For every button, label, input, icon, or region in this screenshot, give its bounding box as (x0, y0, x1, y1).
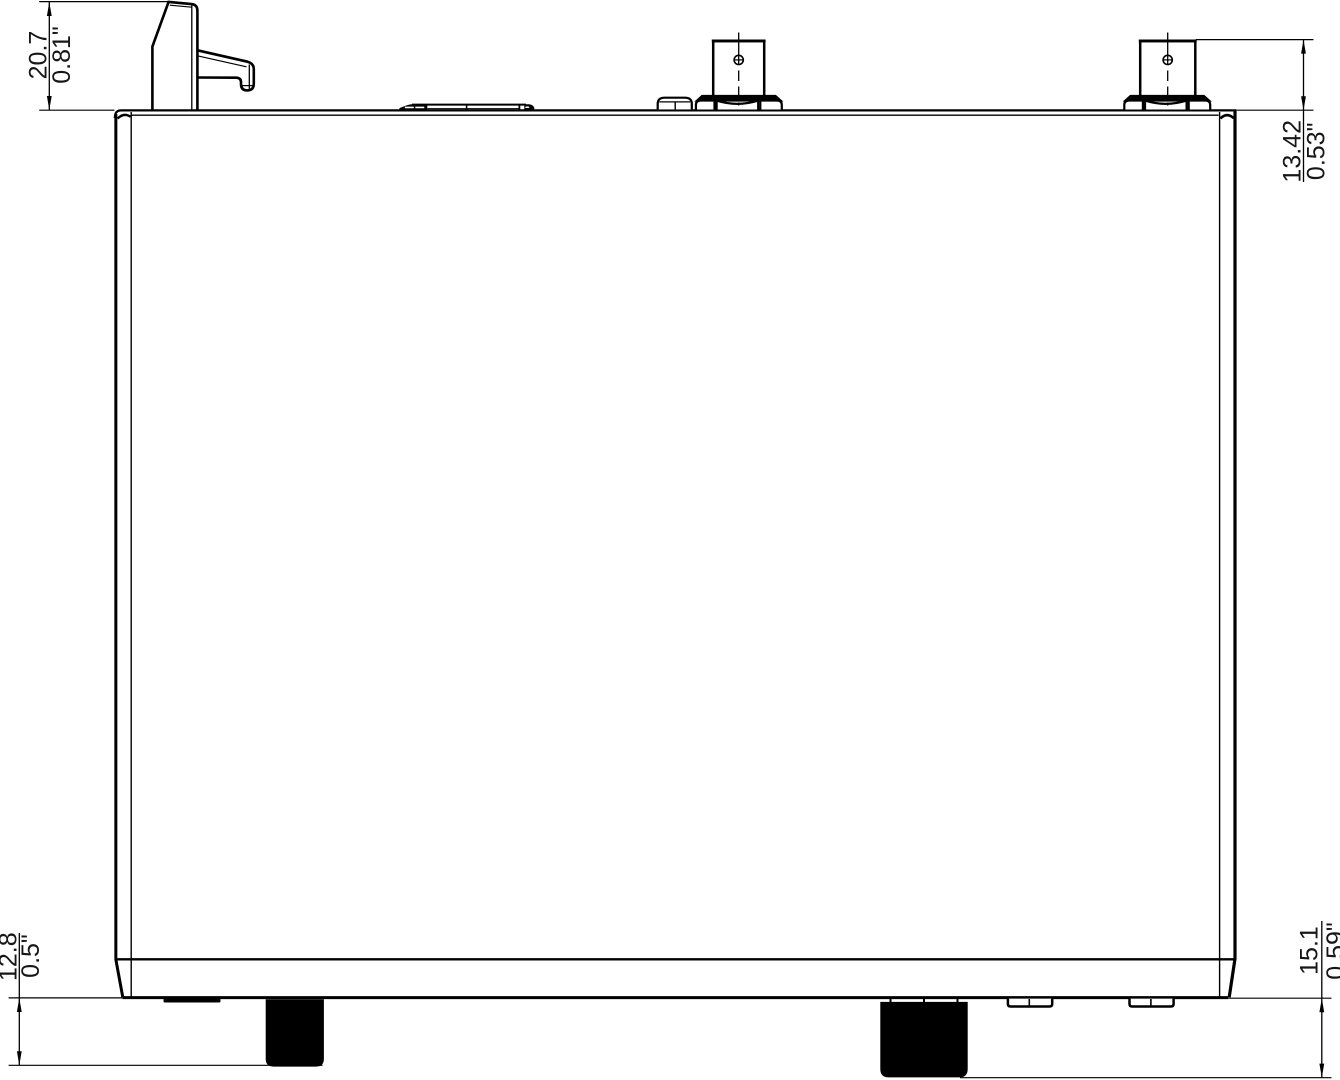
svg-text:0.5": 0.5" (17, 934, 45, 978)
svg-text:15.1: 15.1 (1296, 926, 1324, 975)
svg-text:0.59": 0.59" (1322, 922, 1340, 980)
svg-text:0.81": 0.81" (48, 26, 76, 84)
svg-text:0.53": 0.53" (1302, 123, 1330, 181)
